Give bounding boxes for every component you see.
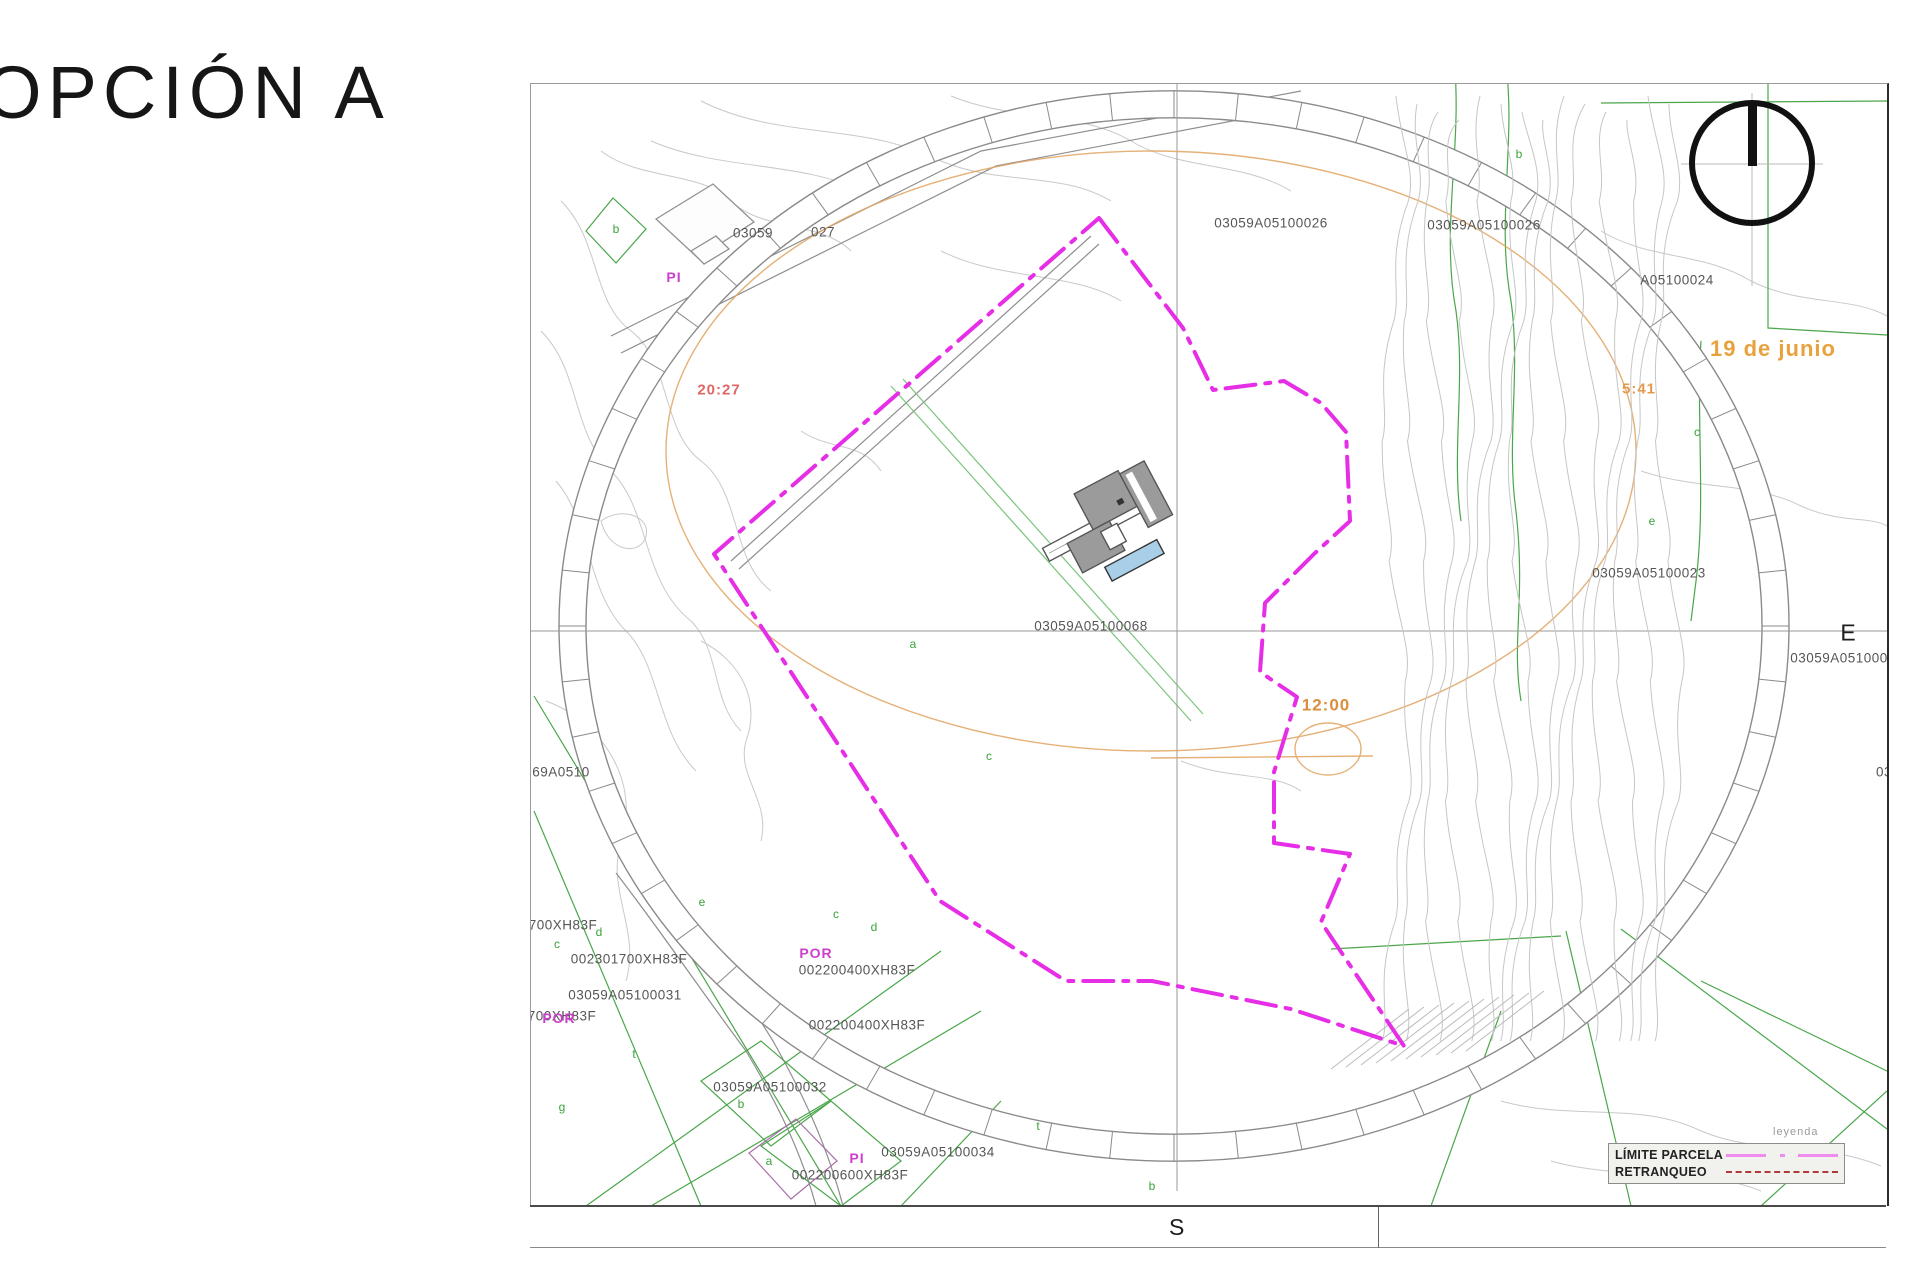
cadastral-parcel-label: 03059A05100026 [1427, 218, 1541, 232]
zone-letter-label: c [554, 938, 560, 950]
site-plan-map: 0305902703059A0510002603059A05100026A051… [530, 83, 1889, 1206]
zone-letter-label: e [699, 896, 706, 908]
road-lines [611, 91, 1311, 1206]
zone-letter-label: c [1694, 426, 1700, 438]
legend-row-limite: LÍMITE PARCELA [1615, 1148, 1838, 1162]
zone-letter-label: t [632, 1048, 635, 1060]
title-block-divider [1378, 1207, 1379, 1248]
cadastral-parcel-label: 03059A05100022 [1790, 651, 1889, 665]
legend-title: leyenda [1773, 1126, 1819, 1138]
cadastral-parcel-label: 03059A05100032 [713, 1080, 827, 1094]
cadastral-parcel-label: 002200400XH83F [809, 1018, 926, 1032]
zone-letter-label: b [738, 1098, 745, 1110]
east-cardinal-label: E [1840, 620, 1855, 647]
zone-letter-label: b [1149, 1180, 1156, 1192]
cadastral-parcel-label: 03059A05100023 [1592, 566, 1706, 580]
zone-code-label: PI [849, 1151, 864, 1165]
house-footprint [1027, 458, 1187, 603]
cadastral-parcel-label: 69A0510 [532, 765, 590, 779]
sun-time-label: 12:00 [1302, 697, 1350, 714]
cadastral-parcel-label: 03059A05100034 [881, 1145, 995, 1159]
zone-code-label: POR [542, 1011, 575, 1025]
zone-letter-label: a [910, 638, 917, 650]
cadastral-parcel-label: 002200400XH83F [799, 963, 916, 977]
title-block-band: S [530, 1205, 1886, 1248]
south-cardinal-label: S [1169, 1214, 1184, 1241]
compass-ring-band [559, 91, 1789, 1161]
zone-letter-label: g [559, 1101, 566, 1113]
legend-label-retranqueo: RETRANQUEO [1615, 1165, 1707, 1179]
purple-parcel-outline [749, 1119, 837, 1199]
cadastral-parcel-label: 002200600XH83F [792, 1168, 909, 1182]
cadastral-parcel-label: A05100024 [1640, 273, 1714, 287]
zone-letter-label: d [871, 921, 878, 933]
north-compass-icon [1681, 93, 1823, 286]
zone-letter-label: d [596, 926, 603, 938]
site-plan-drawing [531, 84, 1887, 1206]
zone-letter-label: a [766, 1155, 773, 1167]
sun-path-ellipse [666, 151, 1636, 775]
legend-row-retranqueo: RETRANQUEO [1615, 1165, 1838, 1179]
sun-time-label: 5:41 [1622, 382, 1656, 397]
zone-letter-label: e [1649, 515, 1656, 527]
cadastral-parcel-label: 03 [1876, 765, 1889, 779]
zone-letter-label: c [833, 908, 839, 920]
legend-label-limite: LÍMITE PARCELA [1615, 1148, 1723, 1162]
retranqueo-line-sample [1726, 1171, 1838, 1173]
zone-letter-label: c [986, 750, 992, 762]
cadastral-parcel-label: 03059A05100026 [1214, 216, 1328, 230]
sun-time-label: 20:27 [697, 383, 740, 398]
limite-line-sample [1726, 1154, 1838, 1157]
cadastral-parcel-label: 002301700XH83F [571, 952, 688, 966]
zone-letter-label: b [613, 223, 620, 235]
cadastral-parcel-label: 027 [811, 225, 835, 239]
zone-code-label: PI [666, 270, 681, 284]
crosshair-axes [531, 84, 1887, 1191]
cadastral-parcel-label: 03059A05100068 [1034, 619, 1148, 633]
zone-letter-label: b [1516, 148, 1523, 160]
cadastral-parcel-label: 700XH83F [530, 918, 597, 932]
sun-time-label: 19 de junio [1710, 338, 1836, 360]
cadastral-parcel-label: 03059A05100031 [568, 988, 682, 1002]
cadastral-parcel-label: 03059 [733, 226, 773, 240]
legend-box: LÍMITE PARCELA RETRANQUEO [1608, 1143, 1845, 1184]
page-title: OPCIÓN A [0, 50, 390, 135]
zone-code-label: POR [799, 946, 832, 960]
zone-letter-label: t [1036, 1120, 1039, 1132]
